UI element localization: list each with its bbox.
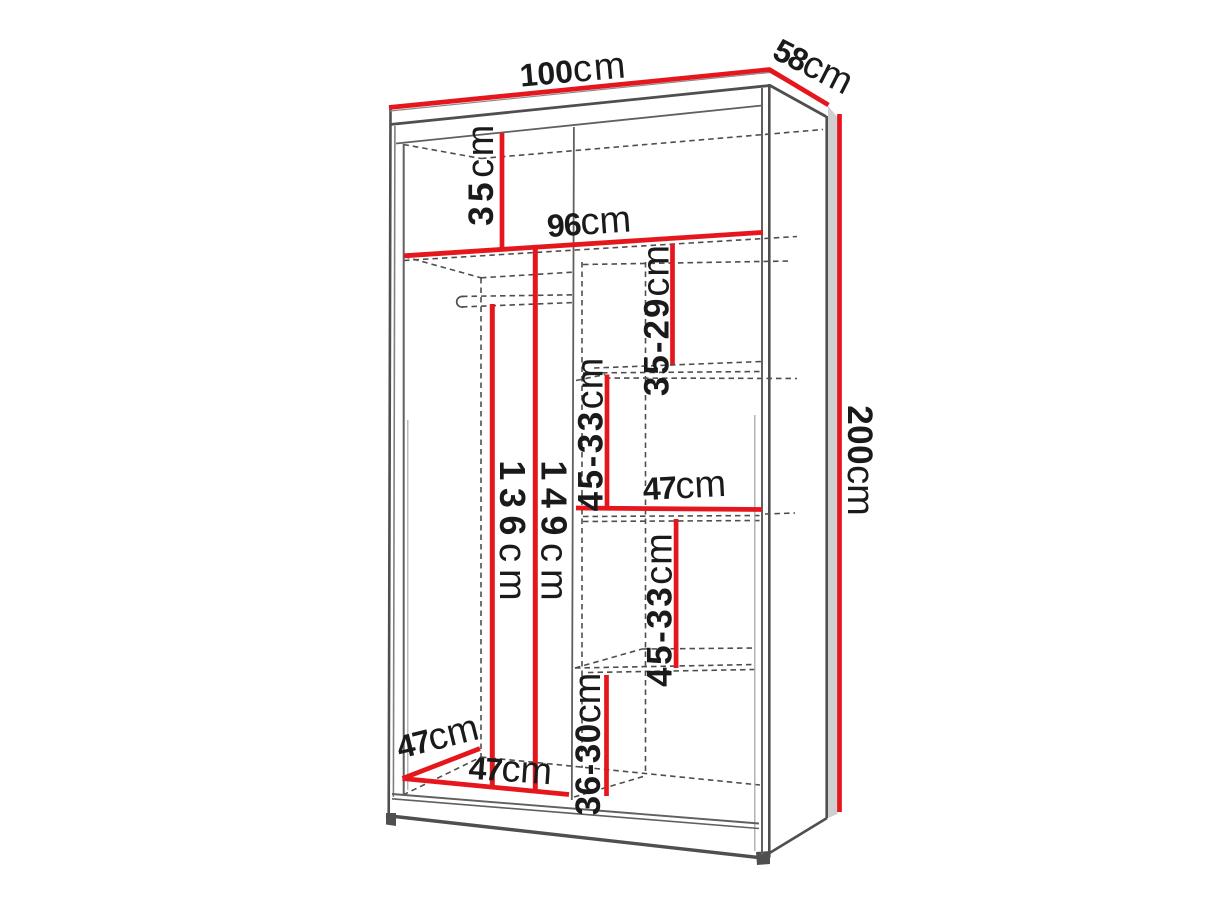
svg-text:35cm: 35cm — [460, 122, 502, 226]
svg-text:35-29cm: 35-29cm — [636, 244, 678, 396]
svg-text:136cm: 136cm — [491, 460, 533, 607]
svg-text:200cm: 200cm — [839, 405, 881, 516]
svg-text:47cm: 47cm — [468, 746, 554, 794]
svg-text:149cm: 149cm — [533, 460, 575, 607]
svg-text:45-33cm: 45-33cm — [639, 532, 681, 687]
svg-text:45-33cm: 45-33cm — [570, 357, 612, 512]
svg-text:36-30cm: 36-30cm — [567, 673, 609, 816]
svg-text:47cm: 47cm — [642, 463, 727, 509]
